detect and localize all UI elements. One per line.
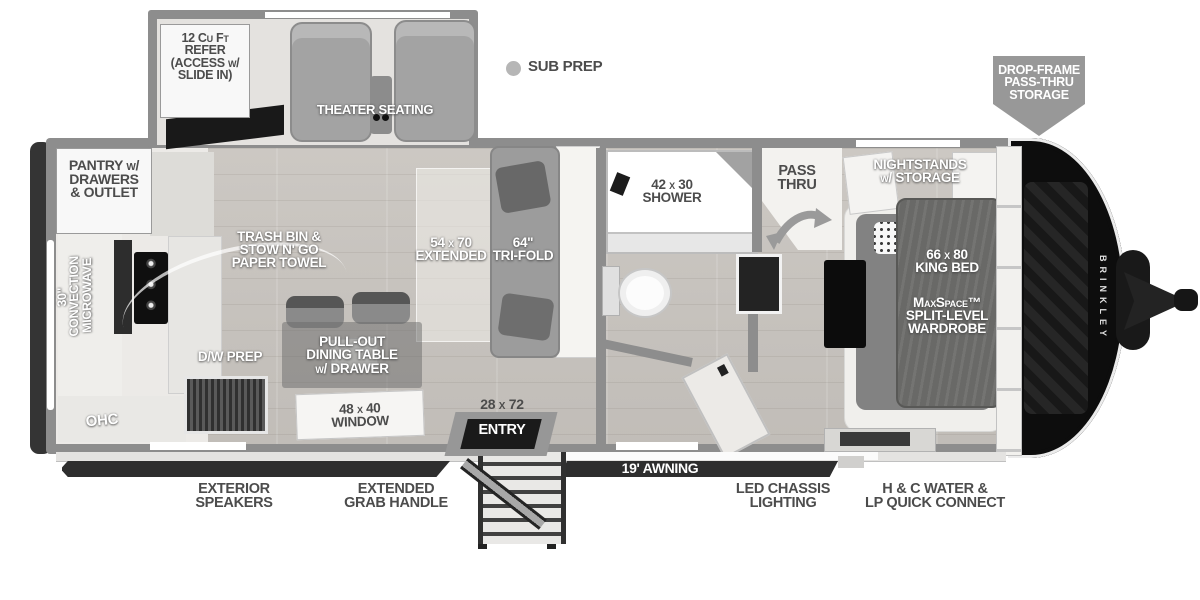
rv-floorplan: 12 Cu Ft REFER (ACCESS w/ SLIDE IN) THEA… — [0, 0, 1200, 600]
microwave-label-wrap: 30" CONVECTION MICROWAVE — [38, 242, 110, 350]
sofa-pillow — [497, 293, 554, 342]
tri-fold-label: 64" TRI-FOLD — [488, 236, 558, 262]
utility-stub — [838, 456, 864, 468]
awning-roller — [560, 452, 878, 460]
theater-seat-right — [394, 20, 476, 142]
theater-seat-left — [290, 22, 372, 142]
dw-prep-label: D/W PREP — [188, 350, 272, 363]
extended-label: 54 x 70 EXTENDED — [404, 236, 498, 262]
pass-thru-arrow-icon — [764, 198, 836, 256]
drop-frame-badge: DROP-FRAME PASS-THRU STORAGE — [993, 56, 1085, 136]
theater-label: THEATER SEATING — [295, 104, 455, 117]
door-handle-icon — [717, 364, 729, 377]
wardrobe-label: MaxSpace™ SPLIT-LEVEL WARDROBE — [898, 296, 996, 336]
slideout-window — [265, 12, 450, 18]
toilet — [618, 268, 672, 318]
bath-vanity-sink — [736, 254, 782, 314]
kitchen-bottom-window — [150, 442, 246, 450]
led-chassis-label: LED CHASSIS LIGHTING — [722, 482, 844, 510]
kitchen-upper-cabinet — [150, 152, 214, 236]
sub-prep-dot-icon — [506, 61, 521, 76]
sofa-back-fascia — [556, 146, 600, 358]
sub-prep-label: SUB PREP — [528, 60, 608, 75]
entry-size-label: 28 x 72 — [462, 398, 542, 412]
entry-label: ENTRY — [464, 423, 540, 437]
grab-handle-label: EXTENDED GRAB HANDLE — [326, 482, 466, 510]
hall-bottom-window — [616, 442, 698, 450]
refer-label-box: 12 Cu Ft REFER (ACCESS w/ SLIDE IN) — [160, 24, 250, 118]
shower-pan — [608, 232, 756, 252]
window-panel: 48 x 40 WINDOW — [295, 390, 425, 440]
shower-corner-seat — [716, 152, 756, 192]
entry-steps — [478, 452, 566, 544]
speakers-label: EXTERIOR SPEAKERS — [178, 482, 290, 510]
kitchen-sink — [184, 376, 268, 434]
window-label: 48 x 40 WINDOW — [331, 401, 389, 429]
nightstands-label: NIGHTSTANDS w/ STORAGE — [858, 158, 982, 184]
dining-label: PULL-OUT DINING TABLE w/ DRAWER — [306, 335, 397, 375]
front-cap-panel — [1024, 182, 1088, 414]
awning-label: 19' AWNING — [598, 461, 722, 477]
microwave-label: 30" CONVECTION MICROWAVE — [56, 255, 93, 338]
pantry-label: PANTRY w/ DRAWERS & OUTLET — [57, 149, 151, 200]
pass-thru-label: PASS THRU — [768, 164, 826, 192]
bath-wall-right-top — [752, 148, 762, 252]
trash-label: TRASH BIN & STOW N' GO PAPER TOWEL — [226, 230, 332, 270]
bedroom-tv — [824, 260, 866, 348]
pantry-label-box: PANTRY w/ DRAWERS & OUTLET — [56, 148, 152, 234]
dining-label-panel: PULL-OUT DINING TABLE w/ DRAWER — [282, 322, 422, 388]
hitch-coupler — [1174, 289, 1198, 311]
water-connect-label: H & C WATER & LP QUICK CONNECT — [844, 482, 1026, 510]
chassis-rail-left — [62, 461, 450, 477]
king-bed-label: 66 x 80 KING BED — [898, 248, 996, 274]
dining-chair — [352, 292, 410, 324]
bedroom-step-inset — [840, 432, 910, 446]
sofa-pillow — [494, 160, 551, 214]
drop-frame-label: DROP-FRAME PASS-THRU STORAGE — [993, 56, 1085, 101]
front-divider — [996, 146, 1022, 456]
refer-label: 12 Cu Ft REFER (ACCESS w/ SLIDE IN) — [161, 25, 249, 81]
bedroom-top-window — [856, 140, 960, 147]
brand-logo: BRINKLEY — [1092, 180, 1108, 416]
shower-label: 42 x 30 SHOWER — [628, 178, 716, 204]
